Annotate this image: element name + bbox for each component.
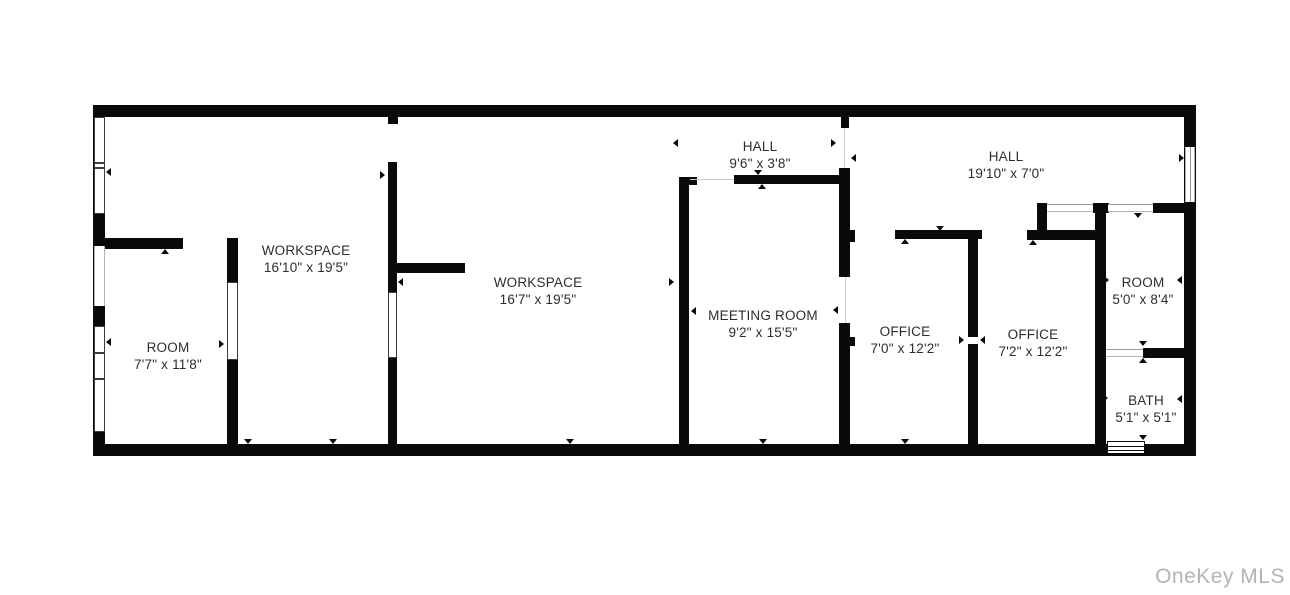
- wall-exterior-top: [93, 105, 1196, 117]
- tick-marker: [959, 336, 964, 344]
- room-dimensions: 7'2" x 12'2": [999, 343, 1068, 360]
- window-mullion: [95, 162, 104, 164]
- wall-room1-right-lower: [227, 360, 238, 444]
- room-label-room2: ROOM 5'0" x 8'4": [1112, 274, 1173, 308]
- window: [1185, 147, 1195, 202]
- room-dimensions: 19'10" x 7'0": [968, 165, 1045, 182]
- tick-marker: [1103, 394, 1108, 402]
- window-mullion: [95, 167, 104, 169]
- wall-opening: [1108, 204, 1153, 212]
- tick-marker: [691, 307, 696, 315]
- window: [94, 117, 105, 214]
- window: [388, 292, 397, 358]
- tick-marker: [306, 112, 314, 117]
- room-name: ROOM: [1112, 274, 1173, 291]
- tick-marker: [1139, 435, 1147, 440]
- tick-marker: [161, 249, 169, 254]
- room-dimensions: 16'10" x 19'5": [262, 259, 351, 276]
- wall-workspace-divider-nub: [388, 117, 398, 124]
- room-dimensions: 9'2" x 15'5": [708, 324, 818, 341]
- floor-plan: ROOM 7'7" x 11'8" WORKSPACE 16'10" x 19'…: [0, 0, 1290, 595]
- room-name: OFFICE: [999, 326, 1068, 343]
- wall-room1-top-stub: [105, 238, 183, 249]
- room-dimensions: 7'0" x 12'2": [871, 340, 940, 357]
- room-dimensions: 7'7" x 11'8": [134, 356, 202, 373]
- room-dimensions: 5'0" x 8'4": [1112, 291, 1173, 308]
- wall-hall-divider-stub: [841, 117, 849, 128]
- wall-room2-left: [1095, 203, 1106, 456]
- window-mullion: [1108, 446, 1144, 447]
- tick-marker: [1179, 154, 1184, 162]
- window-mullion: [95, 352, 104, 354]
- tick-marker: [562, 112, 570, 117]
- tick-marker: [901, 239, 909, 244]
- wall-room1-right-upper: [227, 238, 238, 282]
- room-dimensions: 16'7" x 19'5": [494, 291, 583, 308]
- wall-opening: [1047, 204, 1093, 212]
- room-name: WORKSPACE: [494, 274, 583, 291]
- tick-marker: [980, 336, 985, 344]
- tick-marker: [1134, 213, 1142, 218]
- tick-marker: [1177, 395, 1182, 403]
- room-name: HALL: [968, 148, 1045, 165]
- tick-marker: [934, 112, 942, 117]
- wall-office-divider-upper: [968, 239, 978, 337]
- wall-office-divider-lower: [968, 344, 978, 444]
- window: [94, 326, 105, 432]
- door-line: [845, 277, 846, 323]
- wall-meeting-right-upper: [839, 168, 850, 277]
- tick-marker: [851, 154, 856, 162]
- room-label-workspace2: WORKSPACE 16'7" x 19'5": [494, 274, 583, 308]
- tick-marker: [106, 338, 111, 346]
- room-label-hall2: HALL 19'10" x 7'0": [968, 148, 1045, 182]
- tick-marker: [219, 340, 224, 348]
- room-name: HALL: [729, 138, 790, 155]
- tick-marker: [936, 226, 944, 231]
- wall-office2-stub: [1037, 203, 1047, 240]
- room-dimensions: 5'1" x 5'1": [1115, 409, 1176, 426]
- wall-meeting-right-nub1: [850, 230, 855, 242]
- tick-marker: [329, 439, 337, 444]
- tick-marker: [1177, 276, 1182, 284]
- tick-marker: [244, 439, 252, 444]
- tick-marker: [669, 278, 674, 286]
- room-name: BATH: [1115, 392, 1176, 409]
- window-mullion: [1190, 147, 1191, 202]
- tick-marker: [398, 278, 403, 286]
- tick-marker: [1139, 341, 1147, 346]
- tick-marker: [1104, 276, 1109, 284]
- tick-marker: [673, 139, 678, 147]
- wall-meeting-left: [679, 177, 689, 444]
- wall-office1-top: [895, 230, 982, 239]
- wall-exterior-bottom: [93, 444, 1196, 456]
- wall-opening: [94, 246, 105, 306]
- onekey-mls-watermark: OneKey MLS: [1155, 565, 1285, 589]
- tick-marker: [380, 171, 385, 179]
- window-mullion: [95, 378, 104, 380]
- room-label-bath: BATH 5'1" x 5'1": [1115, 392, 1176, 426]
- tick-marker: [566, 439, 574, 444]
- room-name: ROOM: [134, 339, 202, 356]
- opening-line: [844, 128, 845, 168]
- tick-marker: [901, 439, 909, 444]
- opening-line: [690, 179, 734, 180]
- door-opening: [1106, 349, 1143, 357]
- window-mullion: [1108, 450, 1144, 451]
- wall-workspace-divider-lower: [388, 358, 397, 444]
- tick-marker: [758, 184, 766, 189]
- room-dimensions: 9'6" x 3'8": [729, 155, 790, 172]
- room-name: WORKSPACE: [262, 242, 351, 259]
- wall-meeting-right-nub2: [850, 337, 855, 346]
- room-label-room1: ROOM 7'7" x 11'8": [134, 339, 202, 373]
- bath-window: [1107, 441, 1145, 454]
- tick-marker: [1029, 240, 1037, 245]
- room-label-meeting-room: MEETING ROOM 9'2" x 15'5": [708, 307, 818, 341]
- wall-workspace-stub: [393, 263, 465, 273]
- tick-marker: [831, 139, 836, 147]
- tick-marker: [759, 439, 767, 444]
- wall-room2-top-right: [1153, 203, 1196, 213]
- room-label-workspace1: WORKSPACE 16'10" x 19'5": [262, 242, 351, 276]
- wall-meeting-right-lower: [839, 323, 850, 444]
- tick-marker: [1139, 358, 1147, 363]
- tick-marker: [833, 306, 838, 314]
- room-label-office2: OFFICE 7'2" x 12'2": [999, 326, 1068, 360]
- room-label-hall1: HALL 9'6" x 3'8": [729, 138, 790, 172]
- room-label-office1: OFFICE 7'0" x 12'2": [871, 323, 940, 357]
- room-name: MEETING ROOM: [708, 307, 818, 324]
- wall-hall-bottom: [734, 175, 847, 184]
- tick-marker: [106, 168, 111, 176]
- wall-room2-bath-divider: [1143, 348, 1185, 358]
- room-name: OFFICE: [871, 323, 940, 340]
- window: [227, 282, 238, 360]
